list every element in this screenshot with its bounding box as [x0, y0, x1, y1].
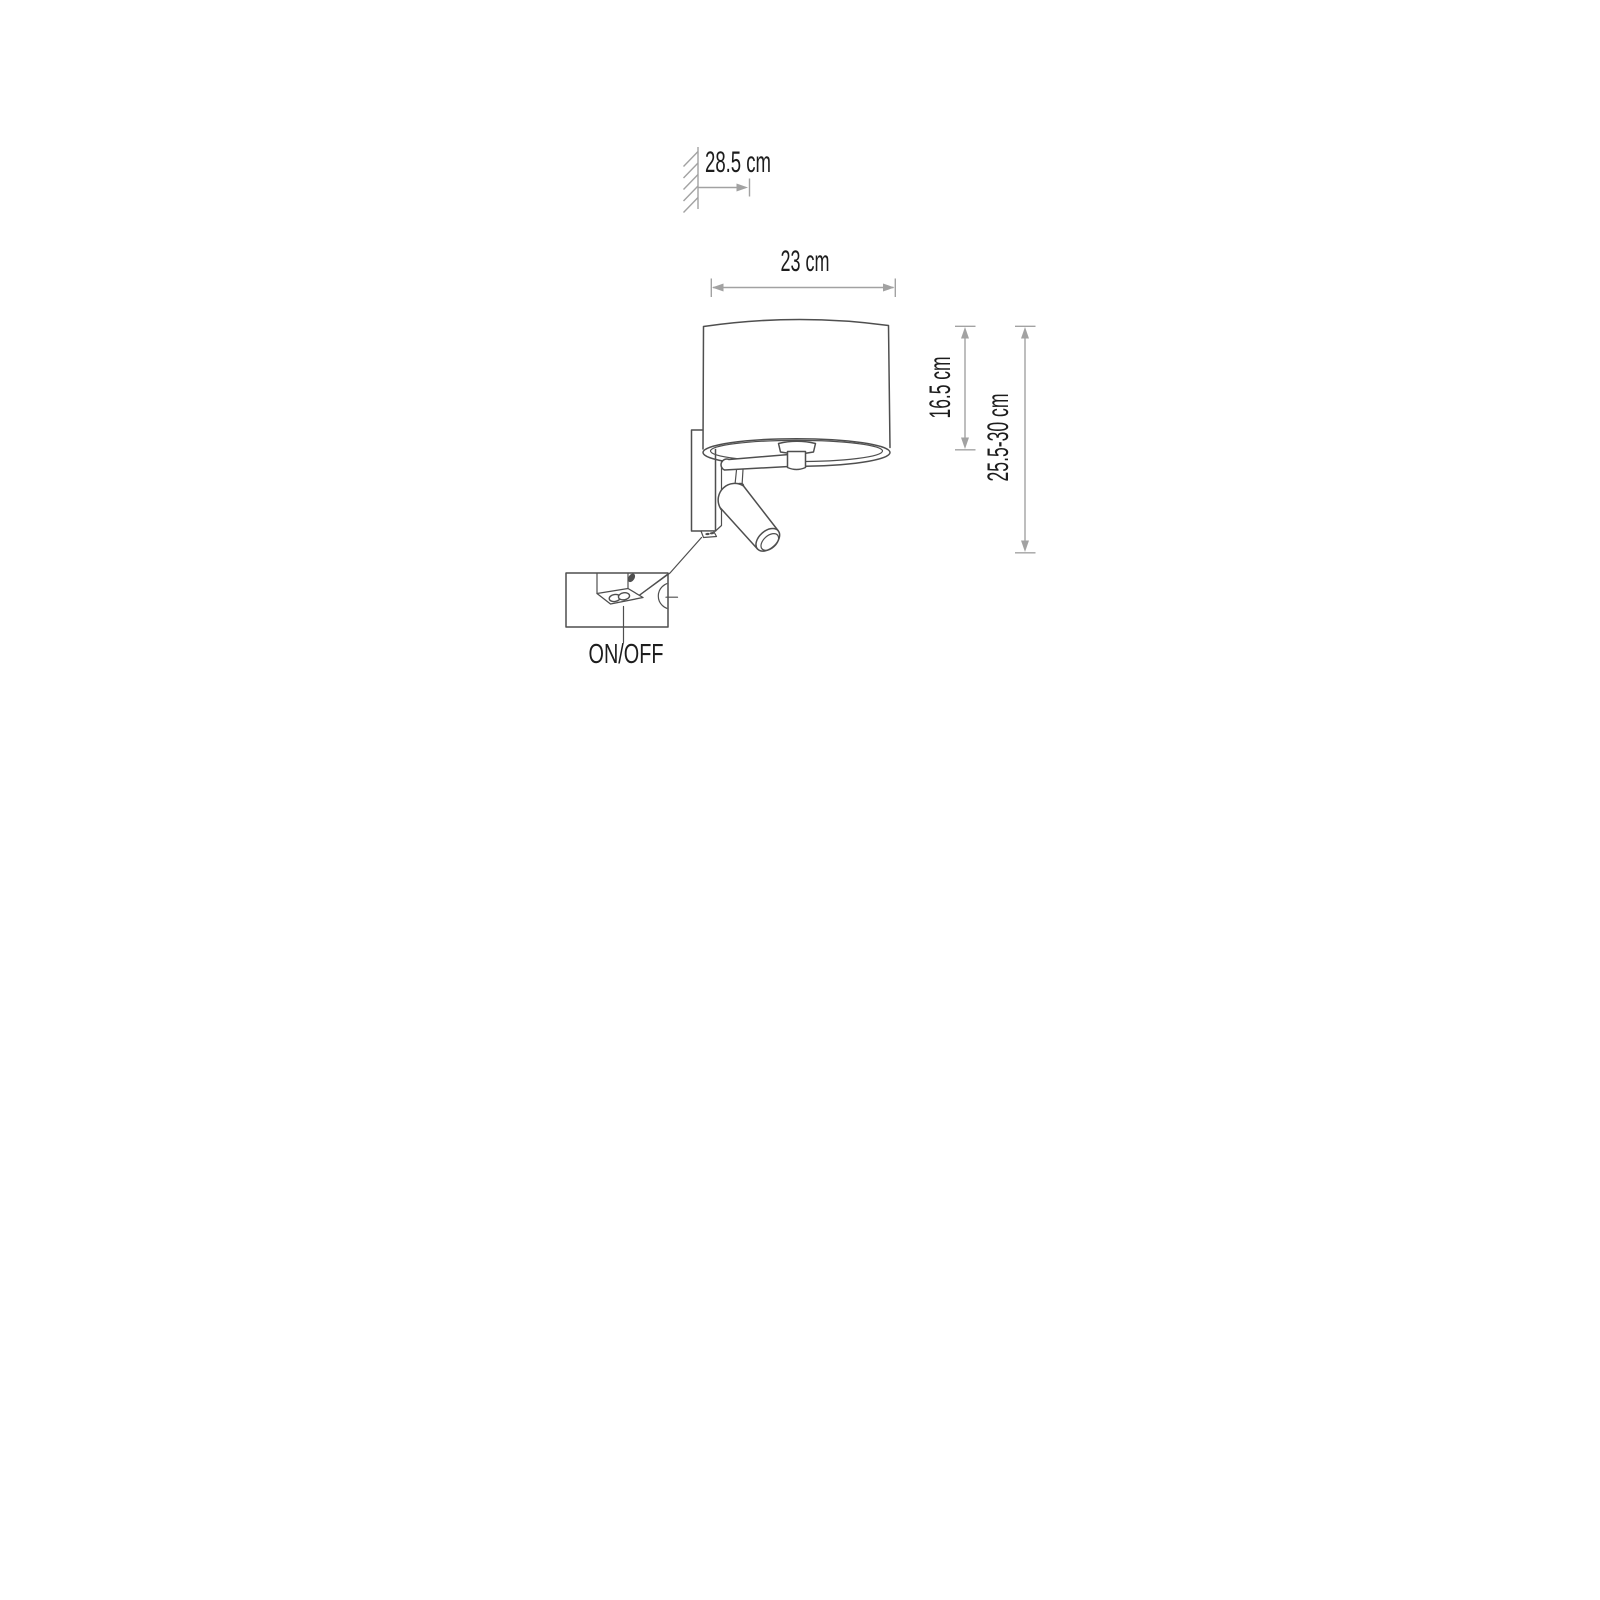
shade-width-label: 23 cm — [781, 245, 830, 278]
wall-hatch-marks — [684, 152, 699, 213]
spotlight-pivot — [735, 470, 737, 485]
arrowhead-right-icon — [883, 284, 895, 292]
arrowhead-left-icon — [712, 284, 724, 292]
arrowhead-down-icon — [961, 438, 969, 450]
wall-hatch-symbol — [684, 147, 699, 213]
callout-leader-line — [637, 538, 702, 598]
magnified-switch-view — [597, 572, 685, 609]
arrowhead-up-icon — [1021, 327, 1029, 339]
arrowhead-up-icon — [961, 327, 969, 339]
shade-height-label: 16.5 cm — [924, 357, 957, 419]
magnified-spotlight-ring — [658, 583, 684, 609]
arrowhead-down-icon — [1021, 541, 1029, 553]
onoff-label: ON/OFF — [589, 638, 664, 669]
switch-detail-callout: ON/OFF — [566, 538, 702, 670]
wall-lamp-drawing — [692, 319, 891, 555]
dimension-shade-width: 23 cm — [711, 245, 895, 297]
reading-spotlight — [718, 470, 784, 556]
socket-body — [788, 452, 806, 470]
dimension-total-height: 25.5-30 cm — [982, 326, 1036, 553]
diagram-canvas: 28.5 cm 23 cm — [0, 0, 1600, 1600]
wall-distance-label: 28.5 cm — [705, 146, 771, 179]
arrowhead-right-icon — [737, 184, 749, 192]
dimension-shade-height: 16.5 cm — [924, 326, 976, 450]
support-arm — [721, 455, 789, 471]
total-height-label: 25.5-30 cm — [982, 394, 1015, 482]
dimension-wall-distance: 28.5 cm — [698, 146, 771, 197]
shade-body-fill — [703, 319, 890, 449]
wall-lamp-dimension-diagram: 28.5 cm 23 cm — [0, 0, 1600, 1600]
